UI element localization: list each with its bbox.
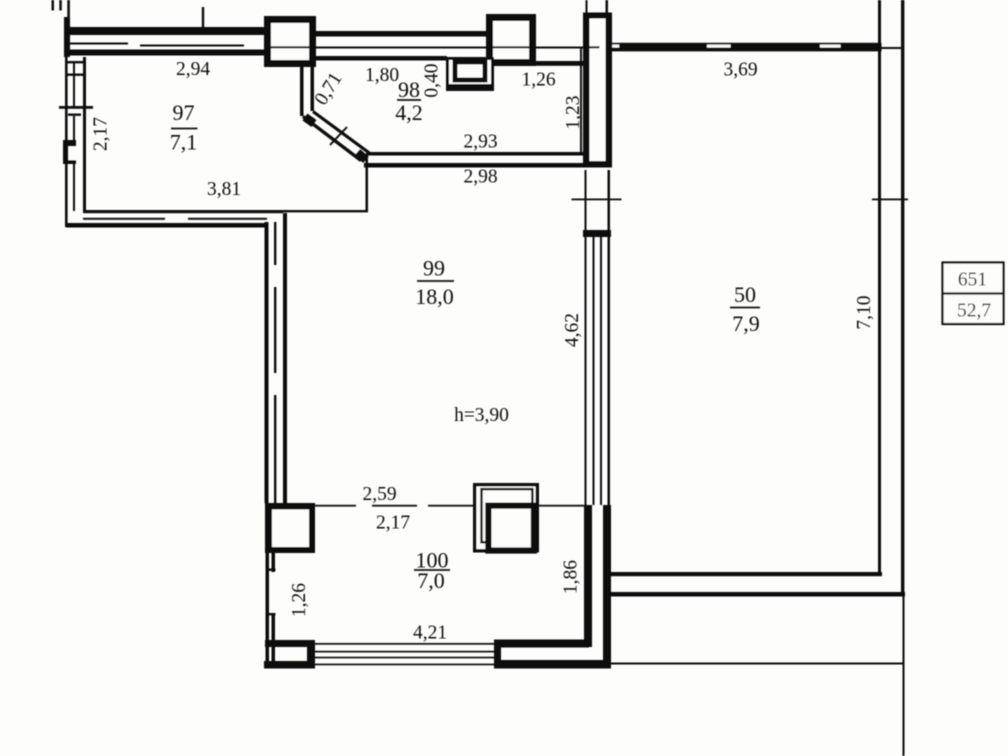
svg-text:4,21: 4,21 (413, 623, 447, 644)
svg-text:7,1: 7,1 (170, 129, 198, 154)
svg-text:4,2: 4,2 (395, 100, 423, 125)
svg-text:7,9: 7,9 (732, 311, 760, 336)
svg-text:2,98: 2,98 (463, 167, 497, 188)
svg-text:1,86: 1,86 (560, 560, 581, 594)
svg-text:4,62: 4,62 (562, 313, 583, 347)
svg-text:3,69: 3,69 (723, 60, 757, 81)
svg-text:52,7: 52,7 (957, 301, 991, 322)
svg-text:2,94: 2,94 (176, 59, 210, 80)
svg-text:2,17: 2,17 (90, 117, 111, 151)
svg-text:2,93: 2,93 (463, 132, 497, 153)
svg-text:50: 50 (734, 282, 756, 307)
svg-text:7,0: 7,0 (417, 568, 445, 593)
svg-text:h=3,90: h=3,90 (454, 405, 509, 426)
svg-text:97: 97 (173, 100, 195, 125)
svg-text:7,10: 7,10 (854, 295, 875, 329)
svg-text:98: 98 (398, 77, 420, 102)
svg-text:3,81: 3,81 (207, 179, 241, 200)
svg-text:1,80: 1,80 (365, 65, 399, 86)
svg-text:18,0: 18,0 (415, 284, 454, 309)
svg-text:1,26: 1,26 (289, 583, 310, 617)
svg-text:1,26: 1,26 (521, 70, 555, 91)
svg-text:2,17: 2,17 (376, 513, 410, 534)
svg-text:651: 651 (958, 270, 987, 291)
svg-text:0,40: 0,40 (421, 63, 442, 97)
svg-text:99: 99 (423, 256, 445, 281)
svg-text:2,59: 2,59 (362, 484, 396, 505)
svg-text:1,23: 1,23 (563, 95, 584, 129)
